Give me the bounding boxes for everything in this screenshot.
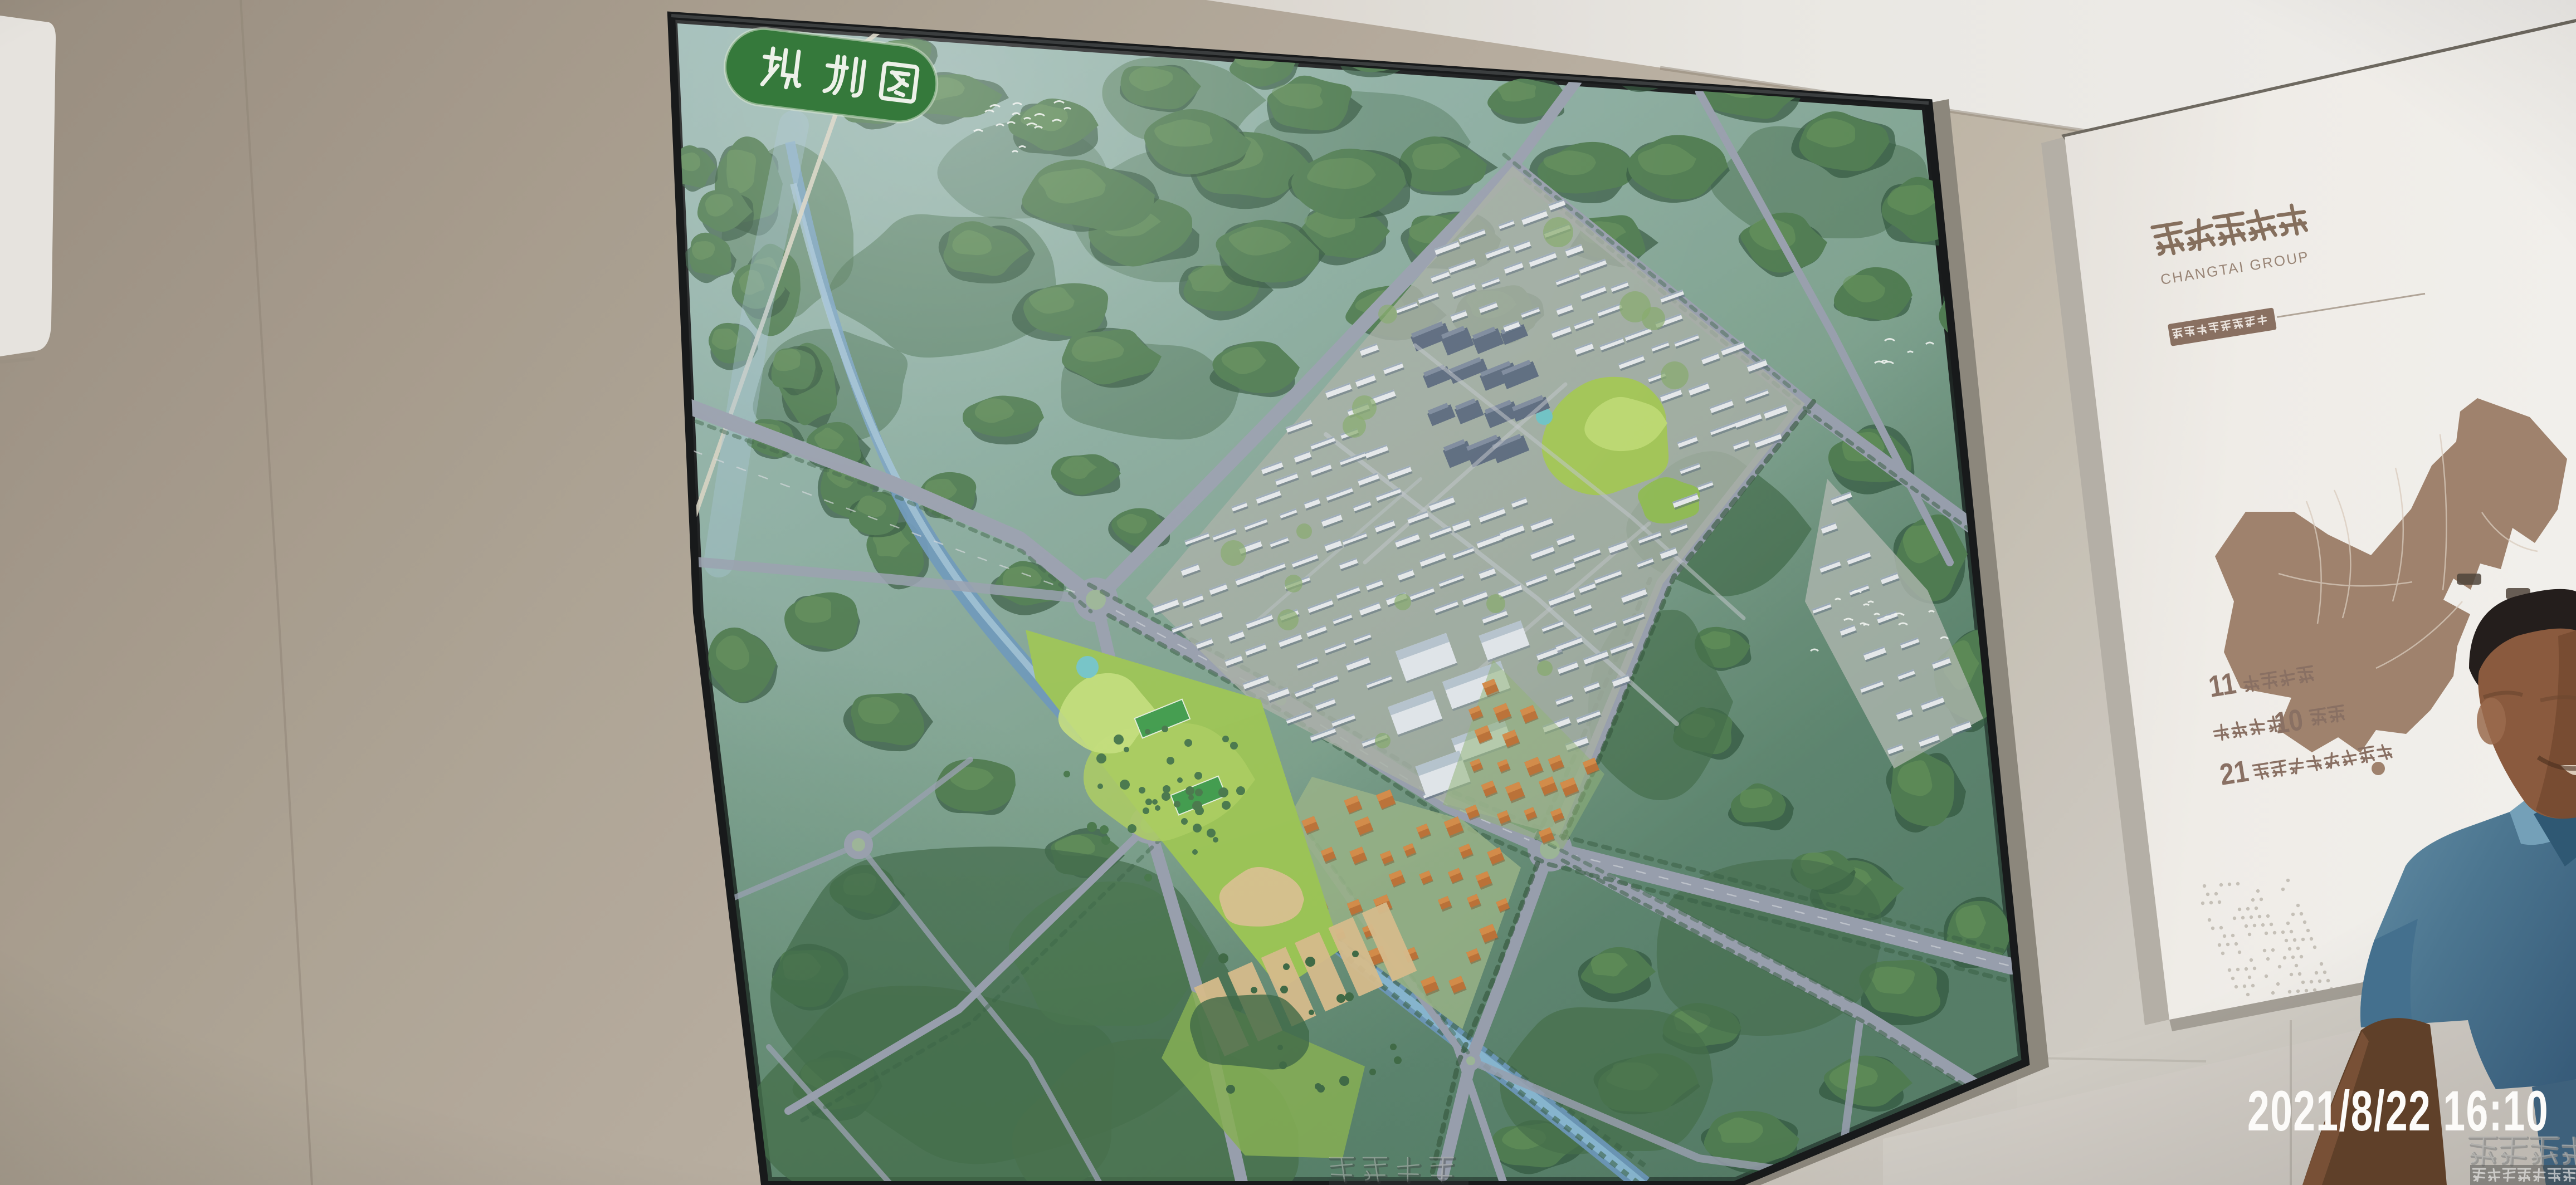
svg-text:2021/8/22 16:10: 2021/8/22 16:10 bbox=[2247, 1079, 2549, 1143]
